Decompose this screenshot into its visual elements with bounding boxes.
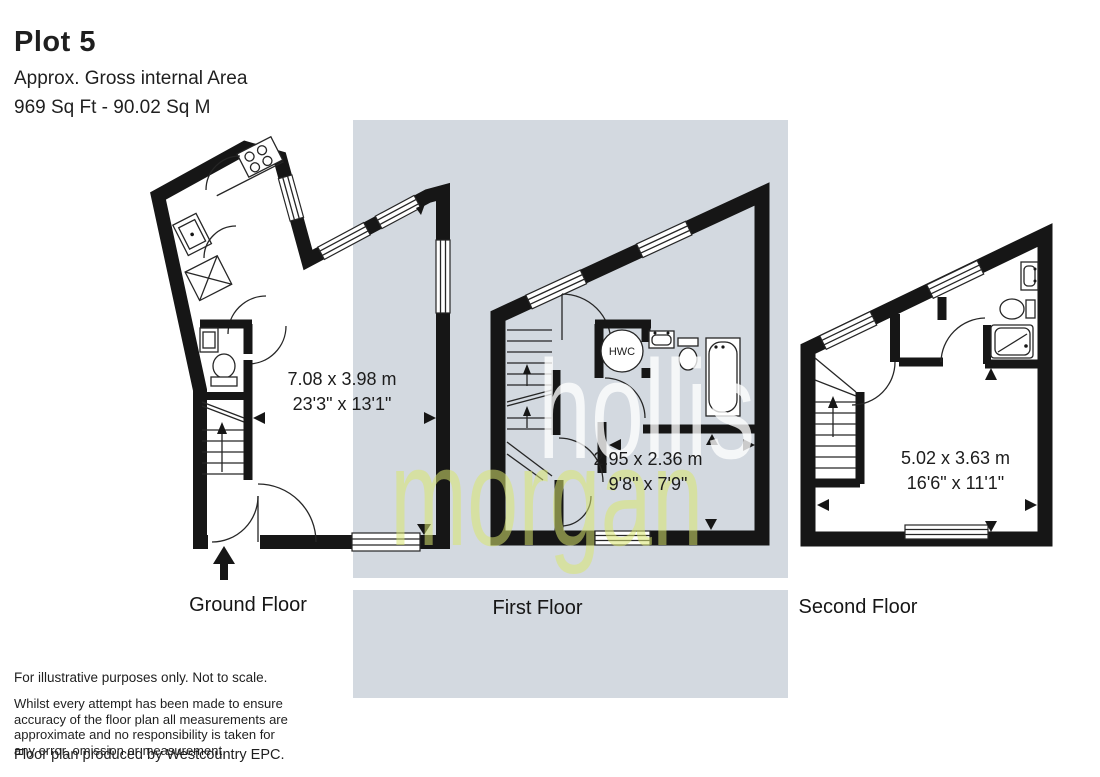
- first-diagonal-window-2: [637, 221, 692, 257]
- floorplan-page: Plot 5 Approx. Gross internal Area 969 S…: [0, 0, 1100, 777]
- first-floor-dimensions: 2.95 x 2.36 m 9'8" x 7'9": [573, 447, 723, 497]
- ground-kitchen-window: [278, 175, 303, 221]
- first-hwc-closet: HWC: [595, 324, 651, 418]
- second-dim-imperial: 16'6" x 11'1": [878, 471, 1033, 496]
- first-stairs: [507, 330, 556, 480]
- ground-floor-dimensions: 7.08 x 3.98 m 23'3" x 13'1": [272, 367, 412, 417]
- second-diagonal-window-2: [927, 261, 984, 299]
- first-landing-door: [562, 294, 611, 343]
- header: Plot 5 Approx. Gross internal Area 969 S…: [14, 26, 247, 119]
- ground-floor-label: Ground Floor: [173, 594, 323, 617]
- first-floor-label: First Floor: [460, 597, 615, 620]
- first-dim-metric: 2.95 x 2.36 m: [573, 447, 723, 472]
- ground-right-wall-window: [436, 240, 450, 313]
- second-floor-label: Second Floor: [783, 596, 933, 619]
- kitchen-door-arcs: [204, 156, 266, 334]
- first-bottom-window: [595, 531, 650, 545]
- ground-floor-plan-drawing: [140, 126, 470, 586]
- ground-diagonal-window-1: [318, 223, 370, 260]
- second-floor-dimensions: 5.02 x 3.63 m 16'6" x 11'1": [878, 446, 1033, 496]
- first-floor-plan-drawing: HWC: [483, 180, 783, 565]
- header-subtitle: Approx. Gross internal Area: [14, 68, 247, 90]
- hwc-label: HWC: [609, 346, 635, 358]
- second-bottom-window: [905, 525, 988, 539]
- ground-floor-plan: [140, 126, 470, 586]
- header-area: 969 Sq Ft - 90.02 Sq M: [14, 97, 247, 119]
- second-floor-plan-drawing: [795, 222, 1065, 552]
- first-floor-plan: HWC: [483, 180, 783, 565]
- footer-note: For illustrative purposes only. Not to s…: [14, 670, 267, 685]
- second-bathroom: [985, 262, 1040, 380]
- second-stairs: [813, 358, 860, 484]
- ground-diagonal-window-2: [375, 195, 420, 228]
- ground-bottom-window: [352, 533, 420, 551]
- kitchen-appliance: [185, 256, 232, 301]
- second-diagonal-window-1: [820, 312, 877, 350]
- ground-dim-metric: 7.08 x 3.98 m: [272, 367, 412, 392]
- second-dim-metric: 5.02 x 3.63 m: [878, 446, 1033, 471]
- ground-dim-imperial: 23'3" x 13'1": [272, 392, 412, 417]
- second-floor-plan: [795, 222, 1065, 552]
- ground-entry-doors: [208, 484, 316, 580]
- first-dim-imperial: 9'8" x 7'9": [573, 472, 723, 497]
- footer-produced-by: Floor plan produced by Westcountry EPC.: [14, 747, 285, 763]
- first-diagonal-window-1: [526, 270, 587, 309]
- page-title: Plot 5: [14, 26, 247, 59]
